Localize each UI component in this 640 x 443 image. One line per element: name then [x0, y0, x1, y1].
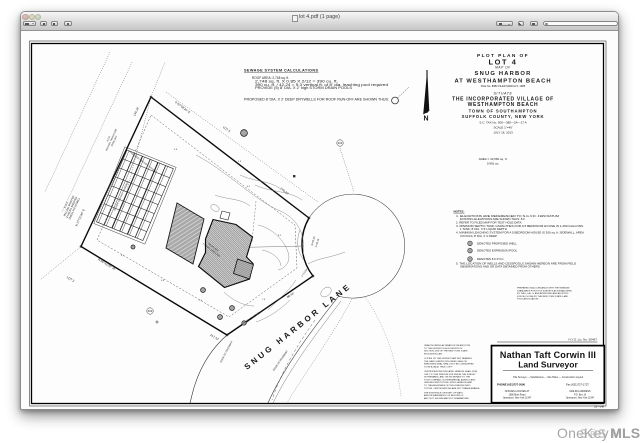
svg-text:1586 Main Road: 1586 Main Road	[509, 394, 527, 396]
svg-text:TO BE A VALID TRUE COPY.: TO BE A VALID TRUE COPY.	[424, 365, 453, 368]
svg-text:Jamesport, New York 11947: Jamesport, New York 11947	[503, 397, 532, 400]
svg-text:3 POOLS; 8' DIA. X 4' DEEP: 3 POOLS; 8' DIA. X 4' DEEP	[460, 234, 497, 238]
svg-text:140.18': 140.18'	[132, 106, 140, 117]
svg-text:SNUG HARBOR LANE: SNUG HARBOR LANE	[243, 281, 354, 371]
svg-text:ONLY TO THE PERSON FOR WHOM TH: ONLY TO THE PERSON FOR WHOM THE SURVEY	[424, 374, 476, 376]
svg-text:EMBOSSED SEAL SHALL NOT BE CON: EMBOSSED SEAL SHALL NOT BE CONSIDERED	[424, 363, 474, 366]
svg-text:403: 403	[338, 141, 343, 145]
svg-text:LENDING INSTITUTION LISTED HER: LENDING INSTITUTION LISTED HEREON, AND	[424, 381, 472, 384]
svg-text:STANDARDS FOR TITLE SURVEYS AS: STANDARDS FOR TITLE SURVEYS AS ESTABLISH…	[517, 289, 572, 292]
svg-text:WESTHAMPTON BEACH: WESTHAMPTON BEACH	[468, 102, 539, 108]
svg-text:UNAUTHORIZED ALTERATION OR ADD: UNAUTHORIZED ALTERATION OR ADDITION	[424, 344, 471, 347]
svg-text:TOWN OF SOUTHAMPTON: TOWN OF SOUTHAMPTON	[469, 108, 538, 113]
svg-text:249.60': 249.60'	[280, 187, 291, 196]
svg-text:FOR SUCH USE BY THE NEW YORK S: FOR SUCH USE BY THE NEW YORK STATE LAND	[517, 295, 569, 298]
svg-text:98.44': 98.44'	[286, 291, 295, 299]
svg-text:MAILING ADDRESS: MAILING ADDRESS	[569, 390, 591, 393]
svg-text:LOT 5: LOT 5	[222, 125, 231, 133]
svg-text:CERTIFICATIONS INDICATED HEREO: CERTIFICATIONS INDICATED HEREON SHALL RU…	[424, 370, 477, 373]
svg-text:6.8: 6.8	[161, 280, 165, 282]
svg-text:S.C. TAX No. 900—380—2A—17 A: S.C. TAX No. 900—380—2A—17 A	[479, 120, 526, 124]
svg-text:L=12.04': L=12.04'	[301, 268, 309, 278]
svg-text:4.9: 4.9	[238, 161, 242, 163]
svg-text:LOT 3: LOT 3	[66, 275, 75, 283]
svg-text:SEWAGE SYSTEM CALCULATIONS: SEWAGE SYSTEM CALCULATIONS	[244, 69, 319, 73]
svg-text:OBSERVATIONS AND OR DATA OBTAI: OBSERVATIONS AND OR DATA OBTAINED FROM O…	[460, 265, 541, 269]
svg-text:PHONE (631)727-2090: PHONE (631)727-2090	[497, 383, 525, 387]
svg-text:Land Surveyor: Land Surveyor	[518, 360, 578, 370]
svg-text:AREA = 43,560 sq. ft.: AREA = 43,560 sq. ft.	[479, 157, 508, 161]
svg-text:PREPARED IN ACCORDANCE WITH TH: PREPARED IN ACCORDANCE WITH THE MINIMUM	[517, 287, 569, 290]
svg-text:N 27°01'40" E: N 27°01'40" E	[74, 208, 86, 227]
svg-text:Jamesport, New York 11947: Jamesport, New York 11947	[566, 397, 595, 400]
svg-text:403: 403	[148, 309, 153, 313]
svg-text:DENOTES EXPANSION POOL: DENOTES EXPANSION POOL	[477, 249, 518, 253]
svg-text:TITLE COMPANY, GOVERNMENTAL AG: TITLE COMPANY, GOVERNMENTAL AGENCY AND	[424, 378, 476, 381]
svg-text:TUTION. CERTIFICATIONS ARE NOT: TUTION. CERTIFICATIONS ARE NOT TRANSFERA…	[424, 387, 481, 390]
svg-text:SNUG HARBOR: SNUG HARBOR	[475, 71, 532, 77]
svg-text:AT WESTHAMPTON BEACH: AT WESTHAMPTON BEACH	[454, 78, 551, 84]
svg-text:25—148: 25—148	[594, 404, 604, 408]
svg-text:MAP OF: MAP OF	[495, 66, 511, 70]
svg-text:COPIES OF THIS SURVEY MAP NOT: COPIES OF THIS SURVEY MAP NOT BEARING	[424, 357, 472, 360]
svg-text:S 62°58'20" E: S 62°58'20" E	[174, 100, 191, 114]
svg-text:FILE No. 8982 FILED MARCH 5,: FILE No. 8982 FILED MARCH 5, 1985	[481, 84, 526, 88]
svg-text:SUFFOLK COUNTY, NEW YORK: SUFFOLK COUNTY, NEW YORK	[462, 114, 545, 119]
svg-text:JULY 16, 2013: JULY 16, 2013	[493, 131, 513, 135]
svg-text:BY THE L.I.A.L.S. AND APPROVED: BY THE L.I.A.L.S. AND APPROVED AND ADOPT…	[517, 292, 569, 295]
svg-text:SITUATE: SITUATE	[493, 92, 512, 96]
svg-text:EDGE OF PAVEMENT: EDGE OF PAVEMENT	[220, 340, 234, 363]
svg-text:217.42': 217.42'	[209, 333, 220, 342]
svg-text:SECTION 7209 OF THE NEW YORK S: SECTION 7209 OF THE NEW YORK STATE	[424, 350, 468, 353]
svg-text:Fax (631)727-1727: Fax (631)727-1727	[566, 383, 589, 387]
svg-text:THE LAND SURVEYOR'S INKED SEAL: THE LAND SURVEYOR'S INKED SEAL OR	[424, 360, 467, 363]
svg-text:S 36°15'40" W: S 36°15'40" W	[242, 311, 260, 325]
svg-text:0.991 ac.: 0.991 ac.	[487, 162, 500, 166]
svg-text:AND/OR EASEMENTS OF RECORD, IF: AND/OR EASEMENTS OF RECORD, IF	[424, 394, 464, 397]
svg-text:8.2: 8.2	[278, 235, 282, 237]
svg-text:5.8: 5.8	[174, 149, 178, 151]
svg-text:IS PREPARED, AND ON HIS BEHALF: IS PREPARED, AND ON HIS BEHALF TO THE	[424, 376, 471, 379]
svg-text:N: N	[423, 116, 428, 123]
svg-text:TO THIS SURVEY IS A VIOLATION: TO THIS SURVEY IS A VIOLATION OF	[424, 347, 463, 350]
svg-text:OFFICES LOCATED AT: OFFICES LOCATED AT	[505, 390, 530, 393]
svg-text:DENOTES PROPOSED WELL: DENOTES PROPOSED WELL	[477, 242, 517, 246]
svg-text:7.4: 7.4	[199, 300, 203, 302]
svg-text:DENOTES 8.0 P.V.C.: DENOTES 8.0 P.V.C.	[477, 257, 505, 261]
svg-text:TO THE ASSIGNEES OF THE LENDIN: TO THE ASSIGNEES OF THE LENDING INSTI-	[424, 384, 471, 387]
svg-text:SCALE 1"=40': SCALE 1"=40'	[493, 126, 512, 130]
svg-text:N 66°43'20" W: N 66°43'20" W	[97, 257, 116, 271]
svg-text:THE EXISTENCE OF RIGHT OF WAYS: THE EXISTENCE OF RIGHT OF WAYS	[424, 391, 463, 394]
svg-text:Nathan Taft Corwin III: Nathan Taft Corwin III	[500, 350, 596, 360]
svg-text:ANY, NOT SHOWN ARE NOT GUARANT: ANY, NOT SHOWN ARE NOT GUARANTEED.	[424, 397, 470, 400]
svg-text:NOTES:: NOTES:	[454, 210, 465, 214]
svg-text:EDUCATION LAW.: EDUCATION LAW.	[424, 352, 443, 355]
svg-text:TITLE ASSOCIATION.: TITLE ASSOCIATION.	[517, 298, 539, 301]
svg-text:P.O. Box 16: P.O. Box 16	[574, 394, 587, 396]
svg-text:Title Surveys — Subdivisions —: Title Surveys — Subdivisions — Site Plan…	[513, 376, 584, 379]
svg-text:7.9: 7.9	[262, 299, 266, 301]
svg-text:6.2: 6.2	[247, 186, 251, 188]
svg-text:PROVIDE (5) 8' DIA. X 2' high: PROVIDE (5) 8' DIA. X 2' high STORM DRAI…	[255, 86, 352, 90]
svg-text:PROPOSED 8' DIA. X 2' DEEP DRY: PROPOSED 8' DIA. X 2' DEEP DRYWELLS FOR …	[244, 98, 389, 102]
svg-text:N.Y.S. Lic. No. 50467: N.Y.S. Lic. No. 50467	[569, 338, 598, 342]
